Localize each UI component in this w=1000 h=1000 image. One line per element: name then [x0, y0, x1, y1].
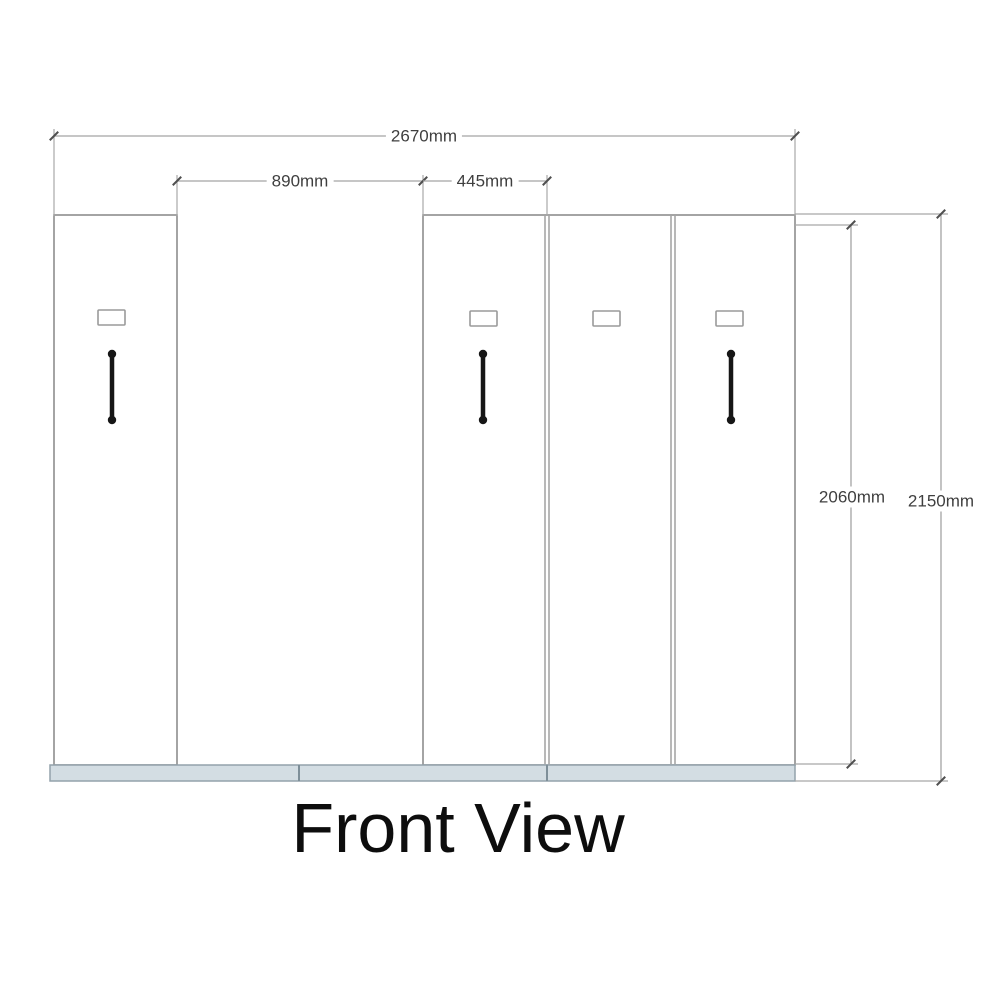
cabinet-left	[54, 215, 177, 765]
cabinet-block-right	[423, 215, 795, 765]
dim-label-body-height: 2060mm	[814, 487, 890, 508]
plinth	[50, 765, 795, 781]
label-plate-icon	[470, 311, 497, 326]
label-plate-icon	[716, 311, 743, 326]
label-plate-icon	[98, 310, 125, 325]
dim-label-unit-width: 445mm	[452, 171, 519, 192]
technical-drawing-front-view: 2670mm 890mm 445mm 2060mm 2150mm Front V…	[0, 0, 1000, 1000]
cabinet-run	[54, 215, 795, 765]
label-plate-icon	[593, 311, 620, 326]
dim-label-overall-height: 2150mm	[903, 491, 979, 512]
view-title: Front View	[291, 793, 624, 863]
dim-label-overall-width: 2670mm	[386, 126, 462, 147]
dim-label-open-bay-width: 890mm	[267, 171, 334, 192]
plinth-base	[50, 765, 795, 781]
